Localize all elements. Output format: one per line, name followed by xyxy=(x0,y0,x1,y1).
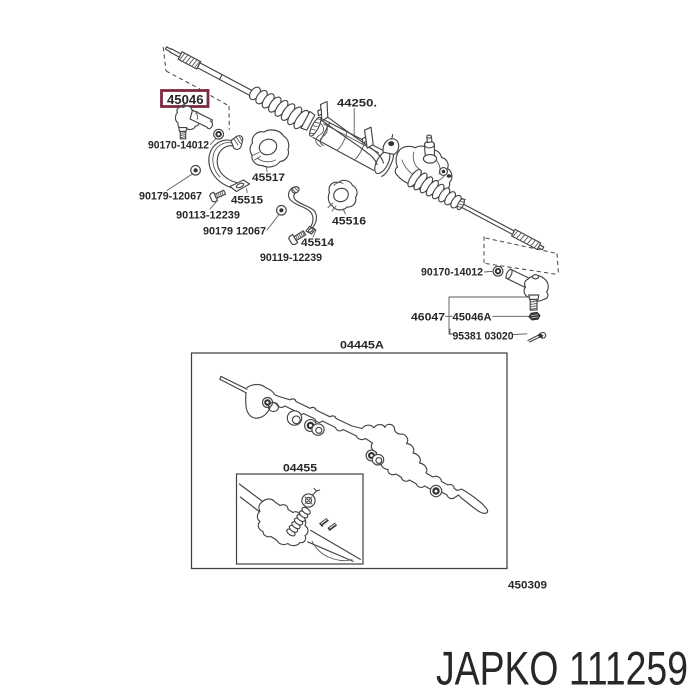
svg-text:90179 12067: 90179 12067 xyxy=(203,226,266,238)
svg-text:90179-12067: 90179-12067 xyxy=(139,191,202,203)
svg-text:45515: 45515 xyxy=(231,194,263,206)
svg-text:90113-12239: 90113-12239 xyxy=(176,209,240,221)
svg-text:44250.: 44250. xyxy=(337,97,377,109)
svg-text:90170-14012: 90170-14012 xyxy=(148,140,209,152)
svg-text:45514: 45514 xyxy=(301,237,335,249)
svg-text:45517: 45517 xyxy=(252,172,285,184)
svg-text:45046A: 45046A xyxy=(453,311,492,323)
svg-text:04445A: 04445A xyxy=(340,339,384,351)
svg-text:04455: 04455 xyxy=(283,462,317,474)
svg-text:JAPKO 111259: JAPKO 111259 xyxy=(436,642,688,695)
svg-text:450309: 450309 xyxy=(508,579,547,591)
svg-text:95381 03020: 95381 03020 xyxy=(453,330,514,342)
svg-text:90170-14012: 90170-14012 xyxy=(421,267,483,279)
svg-text:45516: 45516 xyxy=(332,216,366,228)
svg-text:46047: 46047 xyxy=(411,311,445,323)
svg-text:90119-12239: 90119-12239 xyxy=(260,252,322,264)
